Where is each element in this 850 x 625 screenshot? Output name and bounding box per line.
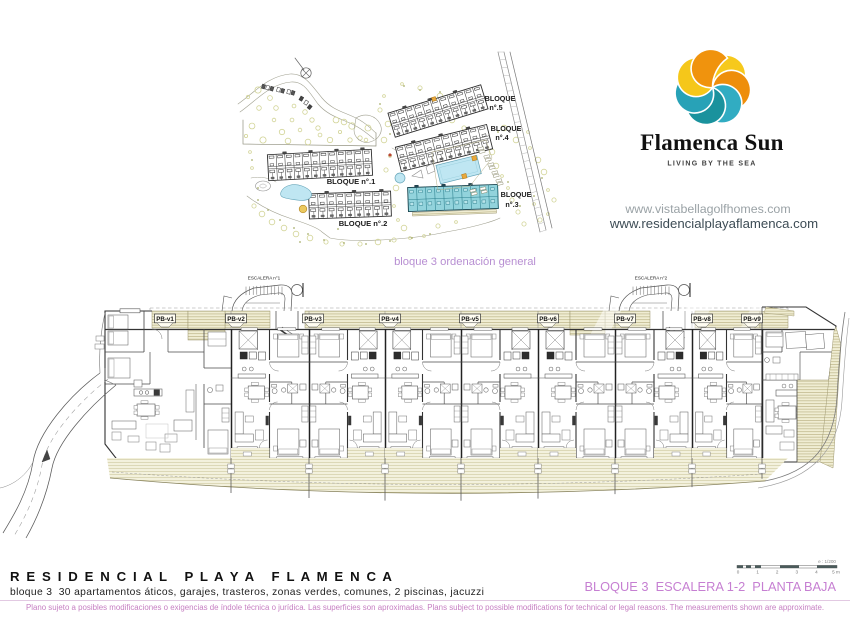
svg-text:n°.5: n°.5 xyxy=(489,103,502,112)
svg-text:BLOQUE: BLOQUE xyxy=(485,94,516,103)
svg-text:R E S I D E N C I A L P L A: R E S I D E N C I A L P L A Y A F L A M … xyxy=(10,569,393,584)
svg-text:3: 3 xyxy=(796,570,799,575)
svg-text:PB-v3: PB-v3 xyxy=(304,316,322,323)
svg-text:BLOQUE: BLOQUE xyxy=(491,124,522,133)
svg-text:PB-v7: PB-v7 xyxy=(616,316,634,323)
svg-text:PB-v5: PB-v5 xyxy=(461,316,479,323)
svg-text:LIVING BY THE SEA: LIVING BY THE SEA xyxy=(667,161,756,168)
svg-text:Flamenca Sun: Flamenca Sun xyxy=(640,130,784,155)
svg-text:n°.4: n°.4 xyxy=(495,133,508,142)
svg-text:bloque 3 ordenación general: bloque 3 ordenación general xyxy=(394,256,536,268)
svg-text:5 m: 5 m xyxy=(832,570,840,575)
svg-text:BLOQUE 3 ESCALERA 1-2 PLANTA: BLOQUE 3 ESCALERA 1-2 PLANTA BAJA xyxy=(584,579,836,594)
svg-text:1: 1 xyxy=(756,570,759,575)
svg-text:0: 0 xyxy=(737,570,740,575)
svg-text:www.residencialplayaflamenca.c: www.residencialplayaflamenca.com xyxy=(609,216,818,231)
svg-text:PB-v6: PB-v6 xyxy=(539,316,557,323)
svg-text:bloque 3 30 apartamentos átic: bloque 3 30 apartamentos áticos, garajes… xyxy=(10,587,484,598)
svg-text:e : 1/200: e : 1/200 xyxy=(818,559,836,564)
svg-text:PB-v4: PB-v4 xyxy=(381,316,399,323)
svg-text:BLOQUE: BLOQUE xyxy=(501,190,532,199)
svg-text:PB-v8: PB-v8 xyxy=(693,316,711,323)
svg-text:PB-v9: PB-v9 xyxy=(743,316,761,323)
svg-text:BLOQUE n°.1: BLOQUE n°.1 xyxy=(327,177,376,186)
svg-text:4: 4 xyxy=(815,570,818,575)
svg-text:PB-v1: PB-v1 xyxy=(156,316,174,323)
svg-text:Plano sujeto a posibles modifi: Plano sujeto a posibles modificaciones o… xyxy=(26,603,824,612)
svg-text:BLOQUE n°.2: BLOQUE n°.2 xyxy=(339,219,388,228)
svg-text:n°.3: n°.3 xyxy=(505,200,518,209)
svg-text:ESCALERA n°2: ESCALERA n°2 xyxy=(635,276,668,281)
svg-text:ESCALERA n°1: ESCALERA n°1 xyxy=(248,276,281,281)
svg-text:www.vistabellagolfhomes.com: www.vistabellagolfhomes.com xyxy=(624,202,790,216)
svg-text:PB-v2: PB-v2 xyxy=(227,316,245,323)
svg-text:2: 2 xyxy=(776,570,779,575)
